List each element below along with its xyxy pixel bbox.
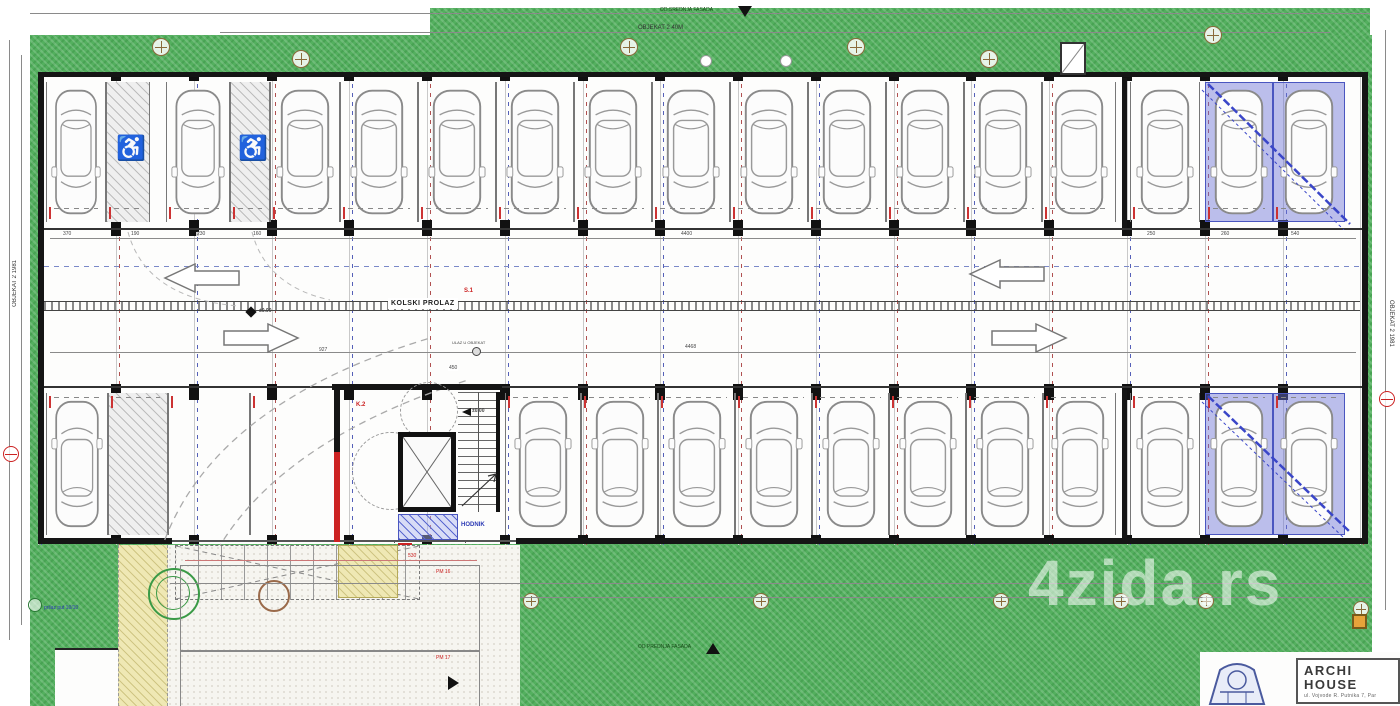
wheel-stop [1138,397,1192,398]
spot-number-mark [738,396,740,408]
annex-pm-label-2: PM 17 [436,656,450,661]
wheel-stop [1138,208,1192,209]
k2-label: K.2 [356,402,365,408]
annex-spot-outline [180,565,480,651]
car-icon [1050,87,1108,217]
access-circle [28,598,42,612]
car [974,87,1032,217]
wheel-stop [820,397,881,398]
spot-number-mark [967,207,969,219]
car-icon [976,398,1034,530]
spot-number-mark [811,207,813,219]
survey-circle [980,50,998,68]
car [1136,398,1194,530]
dimension-value: 540 [1290,232,1300,237]
hodnik-label: HODNIK [461,522,485,528]
stairwell-wall-left-red [334,452,340,542]
wheel-stop [738,208,800,209]
wall-divider-right-top [1122,78,1127,230]
stair-exit-hatch [1062,44,1084,73]
spot-number-mark [1045,207,1047,219]
car [822,398,880,530]
annex-spot-outline-2 [180,651,480,706]
car [1051,398,1109,530]
wheel-stop [816,208,878,209]
car-icon [896,87,954,217]
floor-plan: OBJEKAT 2 40M OBJEKAT 2 1981 OBJEKAT 2 1… [0,0,1400,706]
car [740,87,798,217]
car [1050,87,1108,217]
car [745,398,803,530]
staircase-arrow [460,470,500,510]
car [976,398,1034,530]
archi-house-emblem [1206,656,1268,706]
spot-number-mark [815,396,817,408]
wheel-stop [894,208,956,209]
car-icon [1136,398,1194,530]
car [899,398,957,530]
reserved-note-bottom [1200,392,1360,538]
spot-number-mark [1133,396,1135,408]
car-icon [740,87,798,217]
spot-number-mark [1133,207,1135,219]
aisle-arrow-right-2 [990,322,1068,354]
wall-right [1362,72,1368,544]
watermark: 4zida.rs [1028,546,1282,620]
car-icon [822,398,880,530]
car-icon [1051,398,1109,530]
car-icon [745,398,803,530]
logo-name: ARCHI HOUSE [1304,664,1392,693]
dimension-value: 250 [1146,232,1156,237]
car [1136,87,1194,217]
corridor-strip [398,514,458,540]
stairwell-wall-left-upper [334,390,340,452]
elevator-shaft [398,432,456,512]
corner-walk [55,648,118,706]
logo-subtitle: ul. Vojvode R. Putnika 7, Par [1304,693,1392,699]
wheel-stop [1051,397,1108,398]
wheel-stop [897,397,958,398]
annex-marker-triangle [448,676,459,690]
stairs-level-label: ±0.00 [472,409,484,414]
wheel-stop [743,397,804,398]
survey-circle [753,593,769,609]
aisle-arrow-left-2 [968,258,1046,290]
grid-node-circle [700,55,712,67]
annex-dim-line [185,560,477,561]
car [896,87,954,217]
dimension-value: 260 [1220,232,1230,237]
grid-node-circle [780,55,792,67]
survey-circle [1204,26,1222,44]
benchmark-circle [1379,391,1395,407]
spot-number-mark [1046,396,1048,408]
stair-exit-structure [1060,42,1086,75]
utility-box [1352,614,1367,629]
access-path-label: prilaz put 10/10 [44,606,78,611]
logo-text-box: ARCHI HOUSE ul. Vojvode R. Putnika 7, Pa… [1296,658,1400,704]
survey-circle [847,38,865,56]
spot-number-mark [969,396,971,408]
reserved-note-top [1200,80,1360,230]
wheel-stop [1050,208,1108,209]
annex-pm-label-1: PM 16 [436,570,450,575]
grid-line [1360,75,1361,545]
spot-number-mark [733,207,735,219]
ramp-strip [118,545,168,706]
car-icon [899,398,957,530]
wheel-stop [972,208,1034,209]
car-icon [818,87,876,217]
stairs-level-arrow [462,408,471,416]
annex-dim-label: 530 [408,554,416,559]
wheel-stop [974,397,1035,398]
spot-number-mark [892,396,894,408]
car-icon [974,87,1032,217]
spot-number-mark [889,207,891,219]
elevator-x [403,437,451,507]
wall-divider-right-bottom [1122,390,1127,540]
survey-circle [993,593,1009,609]
car-icon [1136,87,1194,217]
car [818,87,876,217]
